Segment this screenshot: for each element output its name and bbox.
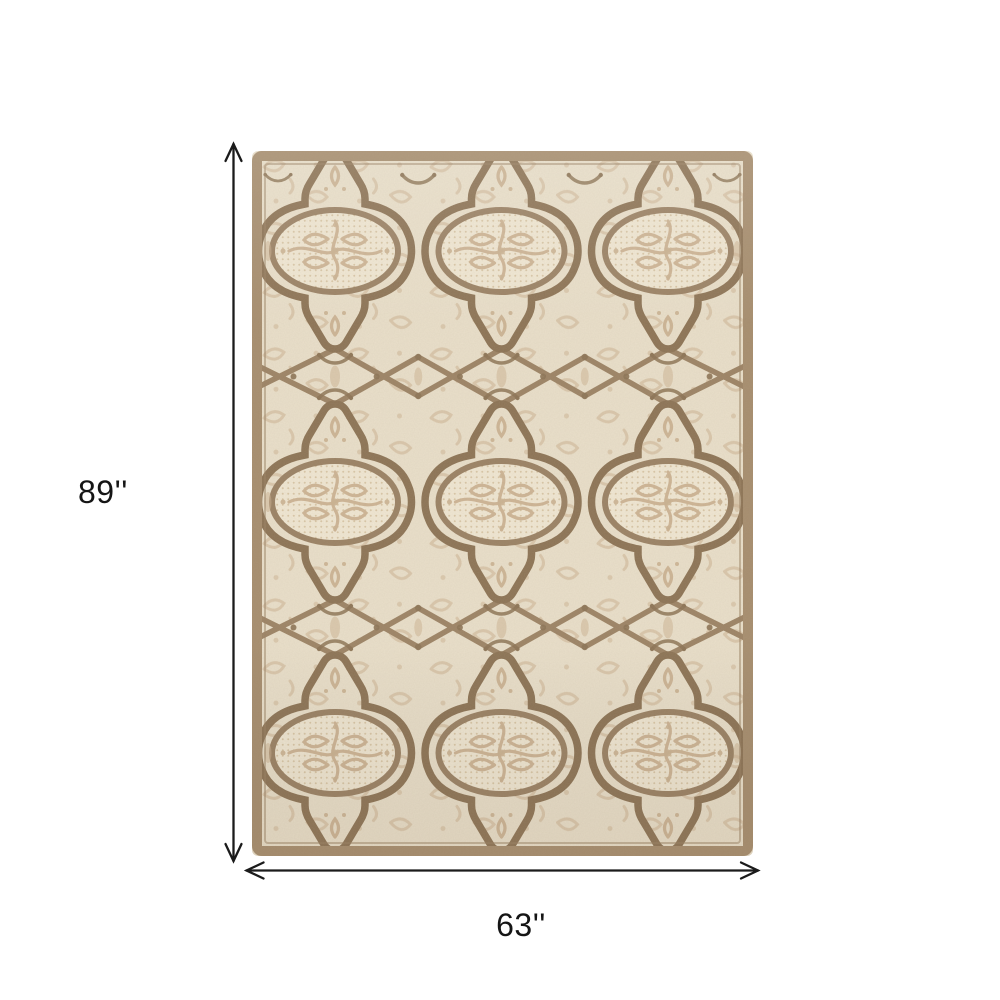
product-dimension-image: 89'' 63''	[0, 0, 1000, 1000]
rug-pattern	[252, 151, 753, 856]
width-dimension-label: 63''	[496, 909, 546, 941]
height-dimension-label: 89''	[78, 476, 128, 508]
width-dimension-arrow	[247, 863, 759, 879]
height-dimension-arrow	[226, 144, 242, 861]
rug-image	[252, 151, 753, 856]
